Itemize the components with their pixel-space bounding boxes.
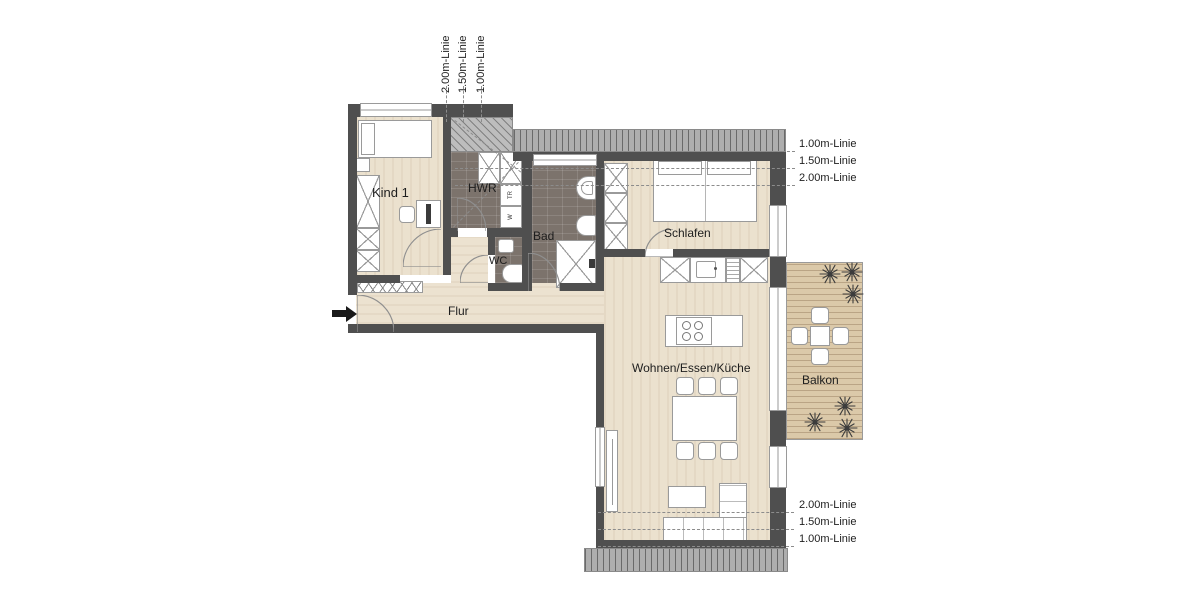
window-kind1 [360,103,432,117]
wall-segment [443,228,458,237]
wc-washbasin [498,239,514,253]
height-line-label: 1.50m-Linie [799,516,856,528]
balcony-chair [811,307,829,324]
height-line [455,168,795,169]
dryer-label: TR [508,191,514,199]
cooktop-burner-icon [682,321,691,330]
height-line-label: 2.00m-Linie [440,36,452,93]
entrance-arrow-icon [332,310,346,317]
cooktop-burner-icon [694,332,703,341]
coffee-table [668,486,706,508]
room-label-flur: Flur [448,304,469,318]
wardrobe-cell [604,223,628,251]
wall-segment [596,152,604,291]
height-line-label: 2.00m-Linie [799,499,856,511]
kind1-bed-pillow [361,123,375,155]
washbasin-bowl [581,181,593,195]
plant-icon [833,394,857,418]
kitchen-sink-basin [696,261,716,278]
kind1-desk-chair [399,206,415,223]
door-arc-wc [460,255,488,283]
toilet [576,215,596,236]
balcony-chair [811,348,829,365]
monitor-icon [426,204,431,224]
window-living-right [769,446,787,488]
door-arc-kind1 [403,229,441,267]
cooktop [676,317,712,345]
height-line-label: 1.50m-Linie [457,36,469,93]
height-line [598,529,794,530]
washer-label: W [508,214,514,220]
kitchen-counter-cabinet [740,257,768,283]
room-label-wohnen: Wohnen/Essen/Küche [632,361,751,375]
cooktop-burner-icon [694,321,703,330]
tv-icon [612,439,613,505]
window-schlafen-balcony-door [769,205,787,257]
door-arc-hwr [457,198,486,231]
height-line-label: 2.00m-Linie [799,172,856,184]
room-label-wc: WC [489,255,507,267]
wardrobe-cell [356,250,380,272]
room-label-balkon: Balkon [802,373,839,387]
wall-segment [352,275,400,283]
dining-chair [720,377,738,395]
dining-chair [676,377,694,395]
shower-head-icon [589,259,595,268]
height-line-label: 1.00m-Linie [799,138,856,150]
tv-board [606,430,618,512]
wall-segment [488,283,528,291]
washer: W [500,206,522,228]
roof-overhang-hatch-bottom [584,548,788,572]
dining-chair [698,442,716,460]
balcony-chair [832,327,849,345]
floor-plan: TR W [0,0,1200,600]
plant-icon [835,416,859,440]
room-label-kind1: Kind 1 [372,185,409,200]
wall-segment [560,283,604,291]
dryer: TR [500,184,522,206]
room-label-bad: Bad [533,229,554,243]
window-bad-skylight [533,154,597,166]
balcony-chair [791,327,808,345]
kitchen-counter-cabinet [660,257,690,283]
room-label-schlafen: Schlafen [664,226,711,240]
window-living-glass-front [769,287,787,411]
wall-segment [348,104,357,295]
door-arc-entrance [357,295,394,332]
wardrobe-cell [356,228,380,250]
wall-segment [673,249,770,257]
wardrobe-cell [356,175,380,228]
plant-icon [803,410,827,434]
height-line-label: 1.00m-Linie [475,36,487,93]
height-line [598,512,794,513]
height-line-label: 1.00m-Linie [799,533,856,545]
plant-icon [841,282,865,306]
height-line [455,185,795,186]
dining-chair [676,442,694,460]
wall-segment [488,237,495,255]
wall-segment [443,117,451,275]
dining-chair [698,377,716,395]
dining-chair [720,442,738,460]
height-line-label: 1.50m-Linie [799,155,856,167]
roof-overhang-hatch-top [513,129,786,152]
kitchen-faucet-icon [714,267,717,270]
plant-icon [818,262,842,286]
wardrobe-cell [604,193,628,223]
window-living-left [595,427,605,487]
balcony-table [810,326,830,346]
height-line [455,151,795,152]
kitchen-drainer [726,257,740,283]
room-label-hwr: HWR [468,181,497,195]
height-line [598,546,794,547]
plant-icon [840,260,864,284]
cooktop-burner-icon [682,332,691,341]
door-arc-bad [528,253,560,291]
wall-segment [604,249,645,257]
dining-table [672,396,737,441]
entrance-arrow-icon [346,306,357,322]
kind1-nightstand [356,158,370,172]
